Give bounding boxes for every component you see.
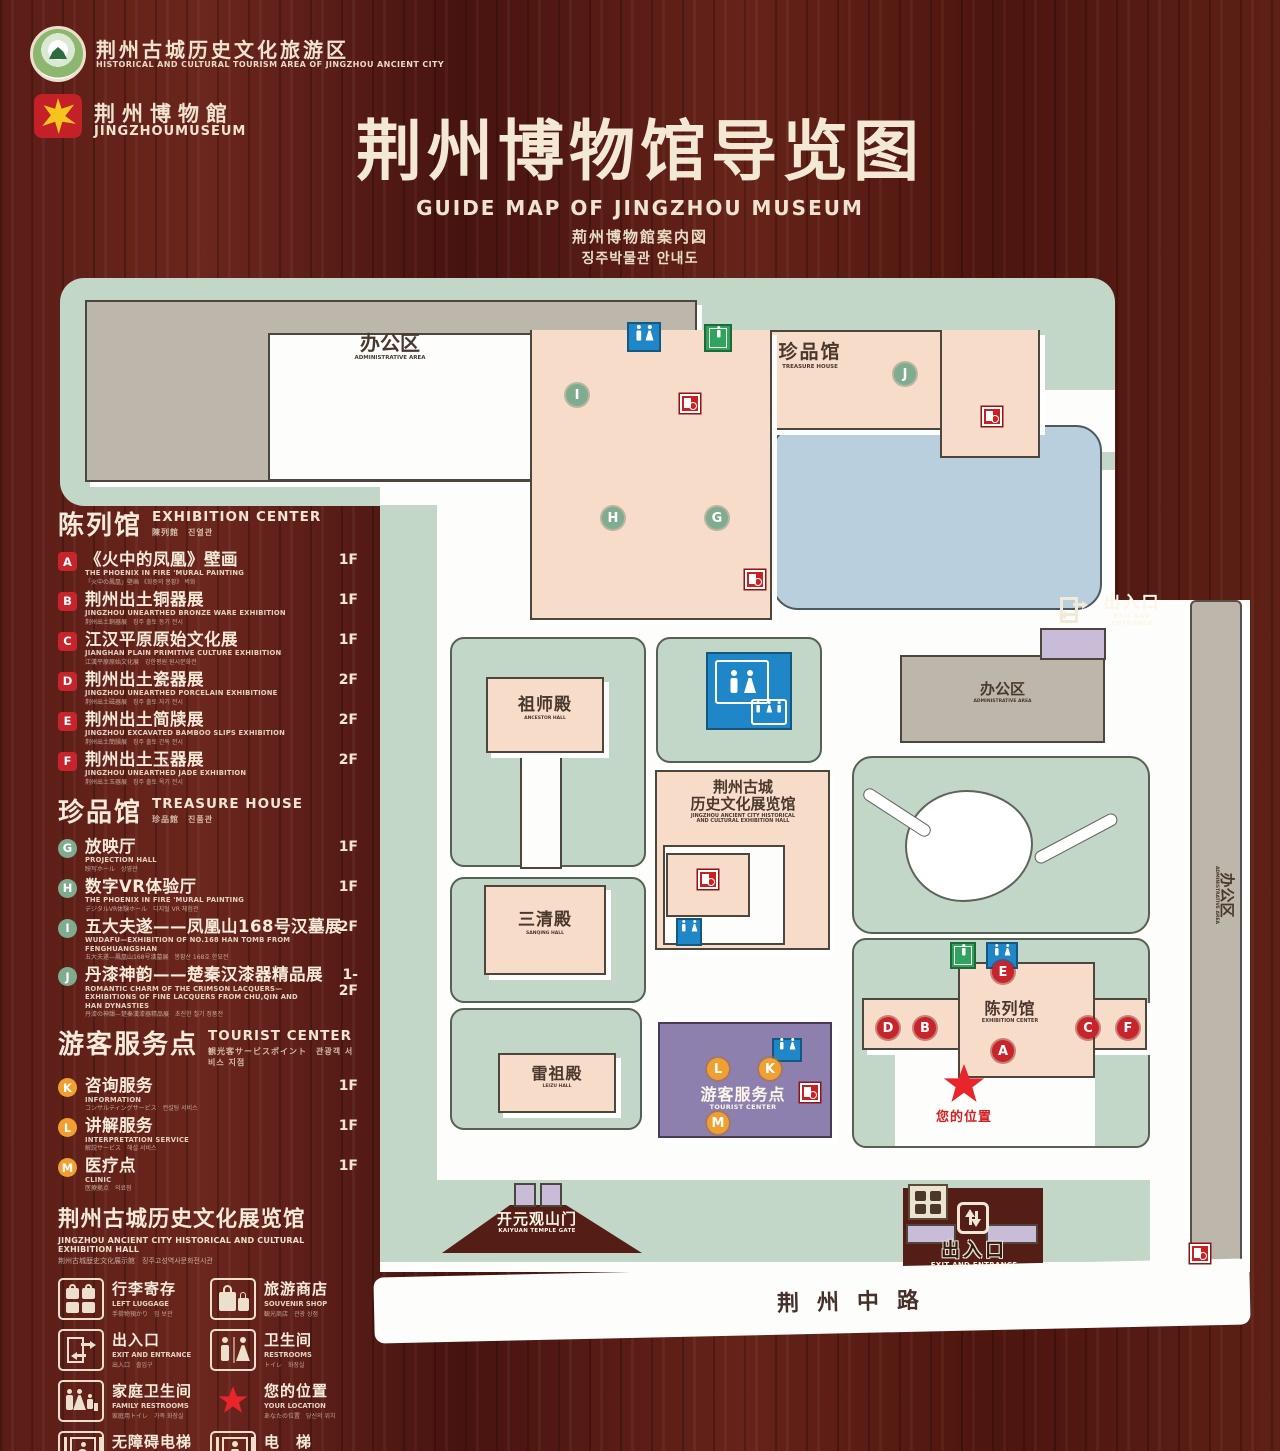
legend-label-zh: 家庭卫生间 xyxy=(112,1380,192,1401)
list-item: J 丹漆神韵——楚秦汉漆器精品展 ROMANTIC CHARM OF THE C… xyxy=(58,966,358,1018)
section-title-sub: 陳列館 진열관 xyxy=(152,527,321,538)
admin-area-building-right xyxy=(900,655,1105,743)
item-name-zh: 丹漆神韵——楚秦汉漆器精品展 xyxy=(85,966,316,983)
item-name-en: INTERPRETATION SERVICE xyxy=(85,1136,316,1144)
item-name-zh: 五大夫遂——凤凰山168号汉墓展 xyxy=(85,918,316,935)
exit-bottom-label: 出入口 xyxy=(918,1240,1030,1261)
list-item: C 江汉平原原始文化展 JIANGHAN PLAIN PRIMITIVE CUL… xyxy=(58,631,358,666)
item-marker: M xyxy=(58,1158,77,1177)
item-name-sub: 荆州出土磁器展 징주 출토 자기 전시 xyxy=(85,699,316,706)
section-items: A 《火中的凤凰》壁画 THE PHOENIX IN FIRE 'MURAL P… xyxy=(58,551,358,786)
section-items: G 放映厅 PROJECTION HALL 映写ホール 상영관 1F H 数字V… xyxy=(58,838,358,1018)
item-name-zh: 荆州出土简牍展 xyxy=(85,711,316,728)
item-name-sub: 荆州出土簡牘展 징주 출토 간독 전시 xyxy=(85,739,316,746)
list-item: H 数字VR体验厅 THE PHOENIX IN FIRE 'MURAL PAI… xyxy=(58,878,358,913)
item-name-sub: デジタルVR体験ホール 디지털 VR 체험관 xyxy=(85,906,316,913)
road-label: 荆州中路 xyxy=(777,1282,938,1317)
item-marker: J xyxy=(58,967,77,986)
item-name-en: CLINIC xyxy=(85,1176,316,1184)
jz-hall-title-en: JINGZHOU ANCIENT CITY HISTORICAL AND CUL… xyxy=(58,1236,358,1254)
list-item: E 荆州出土简牍展 JINGZHOU EXCAVATED BAMBOO SLIP… xyxy=(58,711,358,746)
item-marker: L xyxy=(58,1118,77,1137)
item-name-sub: 荆州出土玉器展 징주 출토 옥기 전시 xyxy=(85,779,316,786)
woman-figure-icon xyxy=(646,325,653,341)
section-header: 珍品馆 TREASURE HOUSE 珍品館 진품관 xyxy=(58,792,358,829)
item-name-zh: 讲解服务 xyxy=(85,1117,316,1134)
section-items: K 咨询服务 INFORMATION コンサルティングサービス 컨설팅 서비스 … xyxy=(58,1077,358,1192)
item-name-en: JINGZHOU UNEARTHED JADE EXHIBITION xyxy=(85,769,316,777)
exit-top-label: 出入口 EXIT AND ENTRANCE xyxy=(1092,594,1172,627)
item-name-en: JINGZHOU EXCAVATED BAMBOO SLIPS EXHIBITI… xyxy=(85,729,316,737)
list-item: K 咨询服务 INFORMATION コンサルティングサービス 컨설팅 서비스 … xyxy=(58,1077,358,1112)
kaiyuan-gate-label: 开元观山门 KAIYUAN TEMPLE GATE xyxy=(472,1211,602,1234)
section-title-zh: 陈列馆 xyxy=(58,505,142,542)
item-marker: H xyxy=(58,879,77,898)
item-name-zh: 荆州出土玉器展 xyxy=(85,751,316,768)
legend-item: 您的位置 YOUR LOCATION あなたの位置 당신의 위치 xyxy=(210,1380,358,1422)
item-marker: K xyxy=(58,1078,77,1097)
legend-item: 无障碍电梯 ACCESSIBLE ELEVATOR バリアフリーエレベーター 무… xyxy=(58,1431,210,1451)
section-title-sub: 観光客サービスポイント 관광객 서비스 지점 xyxy=(208,1046,358,1068)
item-name-zh: 医疗点 xyxy=(85,1157,316,1174)
list-item: A 《火中的凤凰》壁画 THE PHOENIX IN FIRE 'MURAL P… xyxy=(58,551,358,586)
north-gate xyxy=(1040,628,1106,660)
phoenix-icon xyxy=(40,98,76,134)
legend-label-sub: 家庭用トイレ 가족 화장실 xyxy=(112,1411,192,1420)
item-name-zh: 放映厅 xyxy=(85,838,316,855)
item-name-en: PROJECTION HALL xyxy=(85,856,316,864)
item-floor: 1F xyxy=(324,1117,358,1134)
legend-label-en: LEFT LUGGAGE xyxy=(112,1300,176,1308)
shop-icon xyxy=(210,1278,256,1320)
list-item: L 讲解服务 INTERPRETATION SERVICE 解説サービス 해설 … xyxy=(58,1117,358,1152)
legend-item: 电 梯 ELEVATOR エレベーター 엘리베이터 xyxy=(210,1431,358,1451)
item-name-sub: 五大夫遂—鳳凰山168号漢墓展 봉황산 168호 한묘전 xyxy=(85,954,316,961)
leizu-hall-building xyxy=(498,1053,616,1113)
admin-strip-label: 办公区 ADMINISTRATIVE AREA xyxy=(1196,835,1236,955)
tourism-area-name-en: HISTORICAL AND CULTURAL TOURISM AREA OF … xyxy=(96,60,444,69)
section-title-zh: 游客服务点 xyxy=(58,1024,198,1061)
list-item: D 荆州出土瓷器展 JINGZHOU UNEARTHED PORCELAIN E… xyxy=(58,671,358,706)
item-name-en: ROMANTIC CHARM OF THE CRIMSON LACQUERS— … xyxy=(85,985,316,1010)
accessible-elevator-icon xyxy=(58,1431,104,1451)
legend-label-sub: トイレ 화장실 xyxy=(264,1360,312,1369)
restrooms-icon xyxy=(706,652,792,730)
legend-label-zh: 电 梯 xyxy=(264,1431,334,1451)
ancestor-hall-building xyxy=(486,677,604,753)
item-name-en: THE PHOENIX IN FIRE 'MURAL PAINTING xyxy=(85,896,316,904)
page-title-ja: 荊州博物館案内図 xyxy=(240,226,1040,247)
restroom-icon xyxy=(627,322,661,352)
guide-map-sign: 荆州古城历史文化旅游区 HISTORICAL AND CULTURAL TOUR… xyxy=(0,0,1280,1451)
section-title-en: TREASURE HOUSE xyxy=(152,796,303,812)
item-floor: 1F xyxy=(324,1077,358,1094)
legend-label-sub: 観光商店 관광 상점 xyxy=(264,1309,328,1318)
item-name-zh: 数字VR体验厅 xyxy=(85,878,316,895)
item-name-sub: 医療拠点 의료점 xyxy=(85,1185,316,1192)
left-luggage-icon xyxy=(908,1184,948,1220)
family-restroom-icon xyxy=(751,699,787,725)
item-marker: C xyxy=(58,632,77,651)
jz-hall-title-sub: 荆州古城歴史文化展示館 징주고성역사문화전시관 xyxy=(58,1256,358,1266)
page-title: 荆州博物馆导览图 xyxy=(200,98,1080,194)
item-name-zh: 荆州出土瓷器展 xyxy=(85,671,316,688)
tourist-center-building xyxy=(658,1022,832,1138)
item-name-en: WUDAFU—EXHIBITION OF NO.168 HAN TOMB FRO… xyxy=(85,936,316,953)
gate-pillar xyxy=(540,1183,562,1207)
legend-item: 行李寄存 LEFT LUGGAGE 手荷物預かり 짐 보관 xyxy=(58,1278,210,1320)
item-floor: 1F xyxy=(324,591,358,608)
restroom-icon xyxy=(210,1329,256,1371)
item-name-en: THE PHOENIX IN FIRE 'MURAL PAINTING xyxy=(85,569,316,577)
gate-elevator-icon xyxy=(957,1202,989,1234)
legend-item: 卫生间 RESTROOMS トイレ 화장실 xyxy=(210,1329,358,1371)
your-location-label: 您的位置 xyxy=(923,1106,1005,1125)
icon-legend: 行李寄存 LEFT LUGGAGE 手荷物預かり 짐 보관 旅游商店 SOUVE… xyxy=(58,1278,358,1451)
legend-label-sub: あなたの位置 당신의 위치 xyxy=(264,1411,336,1420)
item-name-zh: 荆州出土铜器展 xyxy=(85,591,316,608)
woman-figure-icon xyxy=(745,670,756,694)
legend-label-en: SOUVENIR SHOP xyxy=(264,1300,328,1308)
item-floor: 1F xyxy=(324,631,358,648)
pavilion-icon xyxy=(49,47,67,59)
sanqing-hall-building xyxy=(484,885,606,975)
legend-label-sub: 出入口 출입구 xyxy=(112,1360,191,1369)
item-floor: 1-2F xyxy=(324,966,358,999)
man-figure-icon xyxy=(635,325,642,341)
item-name-sub: 「火中の鳳凰」壁画 《화중의 봉황》 벽화 xyxy=(85,579,316,586)
item-name-sub: 丹漆の神韻—楚秦漢漆器精品展 초진한 칠기 정품전 xyxy=(85,1011,316,1018)
item-marker: A xyxy=(58,552,77,571)
item-marker: I xyxy=(58,919,77,938)
exit-icon xyxy=(58,1329,104,1371)
item-floor: 2F xyxy=(324,711,358,728)
treasure-house-building-left xyxy=(530,330,772,620)
section-exhibition-center: 陈列馆 EXHIBITION CENTER 陳列館 진열관 A 《火中的凤凰》壁… xyxy=(58,505,358,786)
item-marker: G xyxy=(58,839,77,858)
legend-label-zh: 卫生间 xyxy=(264,1329,312,1350)
ancestor-path xyxy=(520,753,562,869)
legend-label-zh: 行李寄存 xyxy=(112,1278,176,1299)
section-title-en: EXHIBITION CENTER xyxy=(152,509,321,525)
tourism-area-name-zh: 荆州古城历史文化旅游区 xyxy=(96,34,349,63)
list-item: B 荆州出土铜器展 JINGZHOU UNEARTHED BRONZE WARE… xyxy=(58,591,358,626)
section-treasure-house: 珍品馆 TREASURE HOUSE 珍品館 진품관 G 放映厅 PROJECT… xyxy=(58,792,358,1018)
west-lawn-strip xyxy=(380,505,437,1181)
legend-label-en: EXIT AND ENTRANCE xyxy=(112,1351,191,1359)
legend-item: 出入口 EXIT AND ENTRANCE 出入口 출입구 xyxy=(58,1329,210,1371)
item-name-zh: 咨询服务 xyxy=(85,1077,316,1094)
treasure-house-building-right xyxy=(940,330,1040,458)
item-name-zh: 《火中的凤凰》壁画 xyxy=(85,551,316,568)
item-name-en: JINGZHOU UNEARTHED BRONZE WARE EXHIBITIO… xyxy=(85,609,316,617)
elevator-icon xyxy=(210,1431,256,1451)
exit-bottom-label-en: EXIT AND ENTRANCE xyxy=(912,1262,1036,1270)
item-name-en: INFORMATION xyxy=(85,1096,316,1104)
item-marker: D xyxy=(58,672,77,691)
item-marker: E xyxy=(58,712,77,731)
item-floor: 1F xyxy=(324,878,358,895)
item-name-en: JIANGHAN PLAIN PRIMITIVE CULTURE EXHIBIT… xyxy=(85,649,316,657)
legend-item: 家庭卫生间 FAMILY RESTROOMS 家庭用トイレ 가족 화장실 xyxy=(58,1380,210,1422)
item-floor: 2F xyxy=(324,671,358,688)
section-header: 游客服务点 TOURIST CENTER 観光客サービスポイント 관광객 서비스… xyxy=(58,1024,358,1068)
item-name-sub: コンサルティングサービス 컨설팅 서비스 xyxy=(85,1105,316,1112)
item-name-sub: 荆州出土銅器展 징주 출토 동기 전시 xyxy=(85,619,316,626)
museum-logo xyxy=(34,94,82,138)
exhibition-center-building-core xyxy=(958,962,1095,1078)
list-item: I 五大夫遂——凤凰山168号汉墓展 WUDAFU—EXHIBITION OF … xyxy=(58,918,358,961)
lake xyxy=(772,425,1102,610)
item-floor: 1F xyxy=(324,551,358,568)
legend-label-sub: 手荷物預かり 짐 보관 xyxy=(112,1309,176,1318)
restroom-icon xyxy=(986,942,1018,969)
section-title-zh: 珍品馆 xyxy=(58,792,142,829)
legend-label-en: YOUR LOCATION xyxy=(264,1402,336,1410)
exit-icon xyxy=(1060,597,1088,625)
item-name-en: JINGZHOU UNEARTHED PORCELAIN EXHIBITIONE xyxy=(85,689,316,697)
page-title-en: GUIDE MAP OF JINGZHOU MUSEUM xyxy=(240,196,1040,220)
section-tourist-center: 游客服务点 TOURIST CENTER 観光客サービスポイント 관광객 서비스… xyxy=(58,1024,358,1192)
gate-pillar xyxy=(514,1183,536,1207)
item-floor: 2F xyxy=(324,751,358,768)
legend-label-zh: 旅游商店 xyxy=(264,1278,328,1299)
emergency-exit-icon xyxy=(950,942,976,969)
item-name-sub: 解説サービス 해설 서비스 xyxy=(85,1145,316,1152)
restroom-icon xyxy=(772,1038,802,1062)
family-restroom-icon xyxy=(58,1380,104,1422)
jz-hall-title: 荆州古城历史文化展览馆 JINGZHOU ANCIENT CITY HISTOR… xyxy=(58,1202,358,1266)
tourist-center-label: 游客服务点 TOURIST CENTER xyxy=(668,1086,818,1111)
jz-exhibition-hall-inner xyxy=(666,853,750,917)
jz-hall-title-zh: 荆州古城历史文化展览馆 xyxy=(58,1202,358,1233)
section-header: 陈列馆 EXHIBITION CENTER 陳列館 진열관 xyxy=(58,505,358,542)
legend-item: 旅游商店 SOUVENIR SHOP 観光商店 관광 상점 xyxy=(210,1278,358,1320)
item-name-sub: 映写ホール 상영관 xyxy=(85,866,316,873)
legend-label-en: FAMILY RESTROOMS xyxy=(112,1402,192,1410)
list-item: M 医疗点 CLINIC 医療拠点 의료점 1F xyxy=(58,1157,358,1192)
legend-label-en: RESTROOMS xyxy=(264,1351,312,1359)
item-name-zh: 江汉平原原始文化展 xyxy=(85,631,316,648)
section-title-sub: 珍品館 진품관 xyxy=(152,814,303,825)
section-title-en: TOURIST CENTER xyxy=(208,1028,358,1044)
list-item: G 放映厅 PROJECTION HALL 映写ホール 상영관 1F xyxy=(58,838,358,873)
item-marker: B xyxy=(58,592,77,611)
legend-sidebar: 陈列馆 EXHIBITION CENTER 陳列館 진열관 A 《火中的凤凰》壁… xyxy=(58,505,358,1451)
legend-label-zh: 出入口 xyxy=(112,1329,191,1350)
page-title-ko: 징주박물관 안내도 xyxy=(240,248,1040,268)
tourism-area-logo xyxy=(30,26,86,82)
man-figure-icon xyxy=(729,670,740,694)
item-floor: 2F xyxy=(324,918,358,935)
luggage-icon xyxy=(58,1278,104,1320)
restroom-icon xyxy=(676,918,702,946)
emergency-exit-icon xyxy=(704,324,732,352)
item-floor: 1F xyxy=(324,838,358,855)
legend-label-zh: 您的位置 xyxy=(264,1380,336,1401)
list-item: F 荆州出土玉器展 JINGZHOU UNEARTHED JADE EXHIBI… xyxy=(58,751,358,786)
legend-label-zh: 无障碍电梯 xyxy=(112,1431,210,1451)
your-location-icon xyxy=(210,1380,256,1422)
item-marker: F xyxy=(58,752,77,771)
item-floor: 1F xyxy=(324,1157,358,1174)
item-name-sub: 江漢平原原始文化展 강한평원 원시문화전 xyxy=(85,659,316,666)
